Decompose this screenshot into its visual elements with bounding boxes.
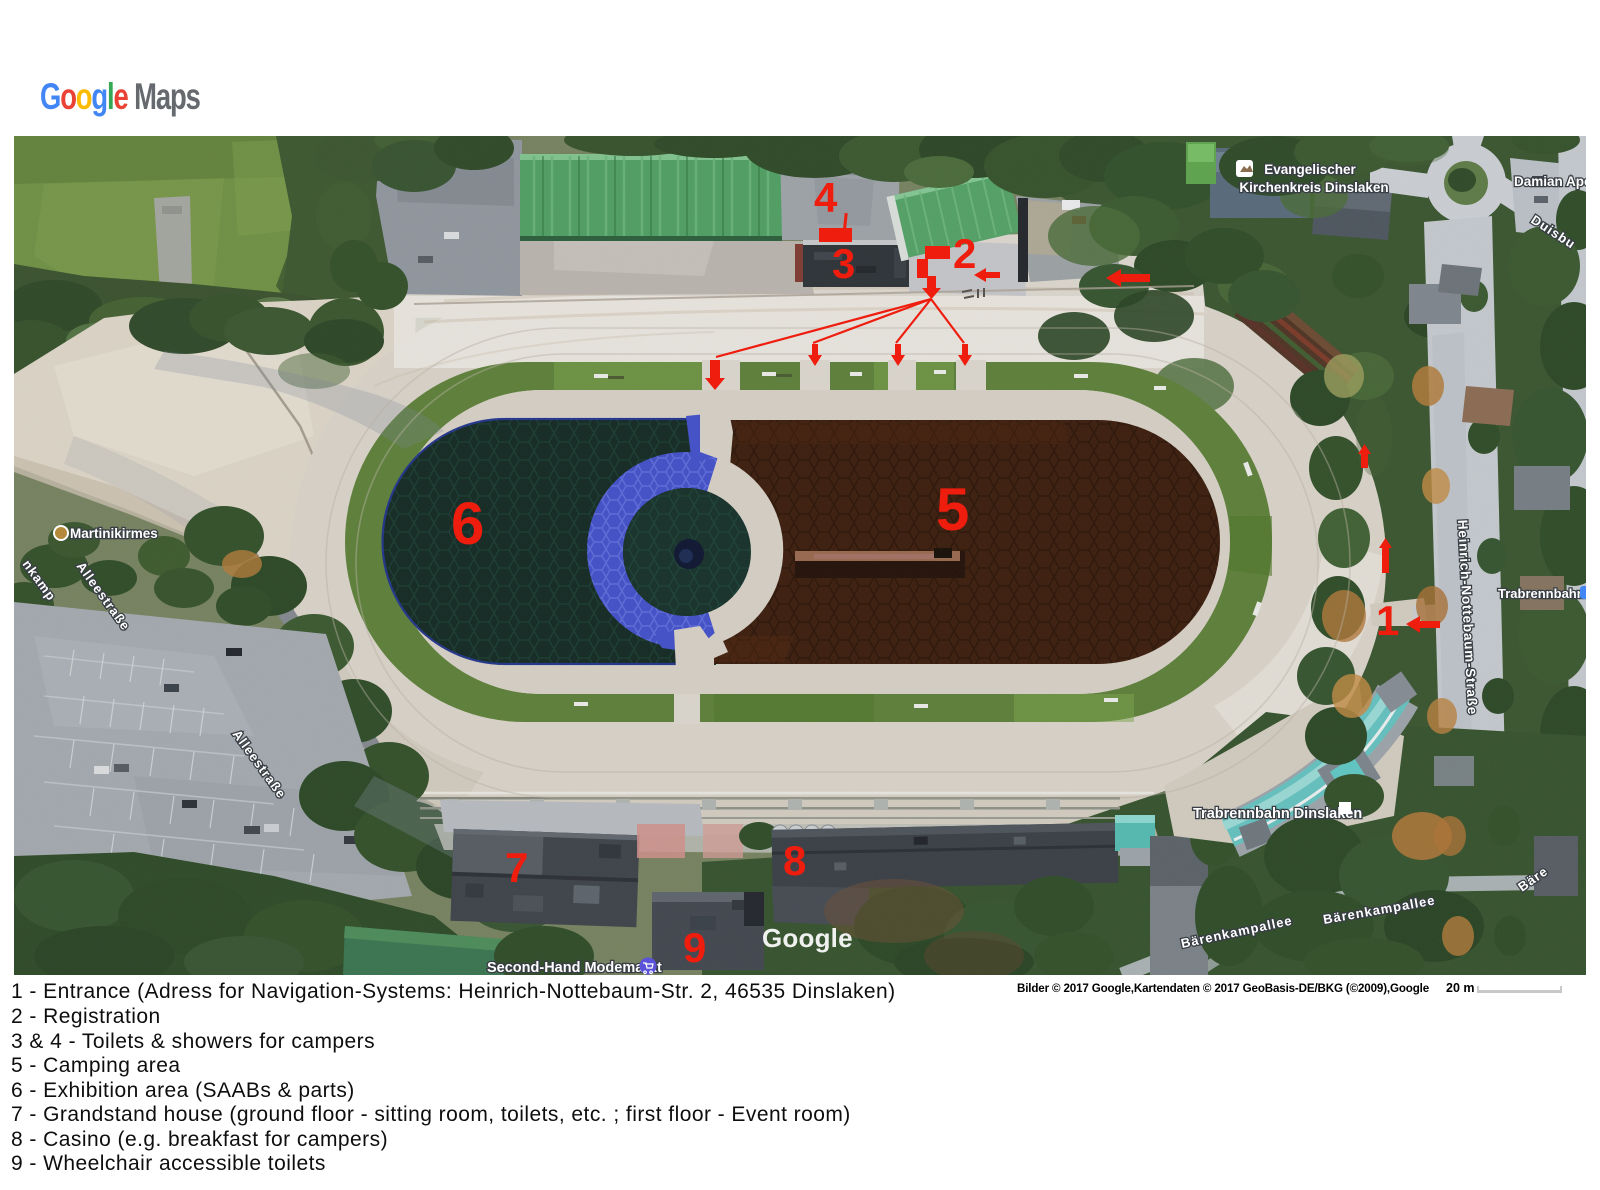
svg-text:Google: Google — [762, 923, 853, 953]
svg-text:8: 8 — [783, 837, 806, 884]
svg-text:6: 6 — [451, 490, 484, 557]
svg-text:Damian Apo: Damian Apo — [1514, 174, 1586, 189]
svg-text:5: 5 — [936, 476, 969, 543]
svg-text:Martinikirmes: Martinikirmes — [70, 526, 158, 541]
svg-text:Evangelischer: Evangelischer — [1264, 162, 1356, 177]
svg-text:Trabrennbahn Dinslaken: Trabrennbahn Dinslaken — [1193, 806, 1362, 822]
svg-text:3: 3 — [832, 240, 855, 287]
svg-text:7: 7 — [505, 844, 528, 891]
svg-text:2: 2 — [953, 230, 976, 277]
svg-text:Kirchenkreis Dinslaken: Kirchenkreis Dinslaken — [1239, 180, 1388, 195]
svg-text:1: 1 — [1376, 597, 1399, 644]
svg-text:Second-Hand Modemarkt: Second-Hand Modemarkt — [487, 960, 662, 975]
svg-text:9: 9 — [683, 924, 706, 971]
svg-text:4: 4 — [814, 174, 838, 221]
svg-text:Trabrennbahn: Trabrennbahn — [1498, 586, 1585, 601]
